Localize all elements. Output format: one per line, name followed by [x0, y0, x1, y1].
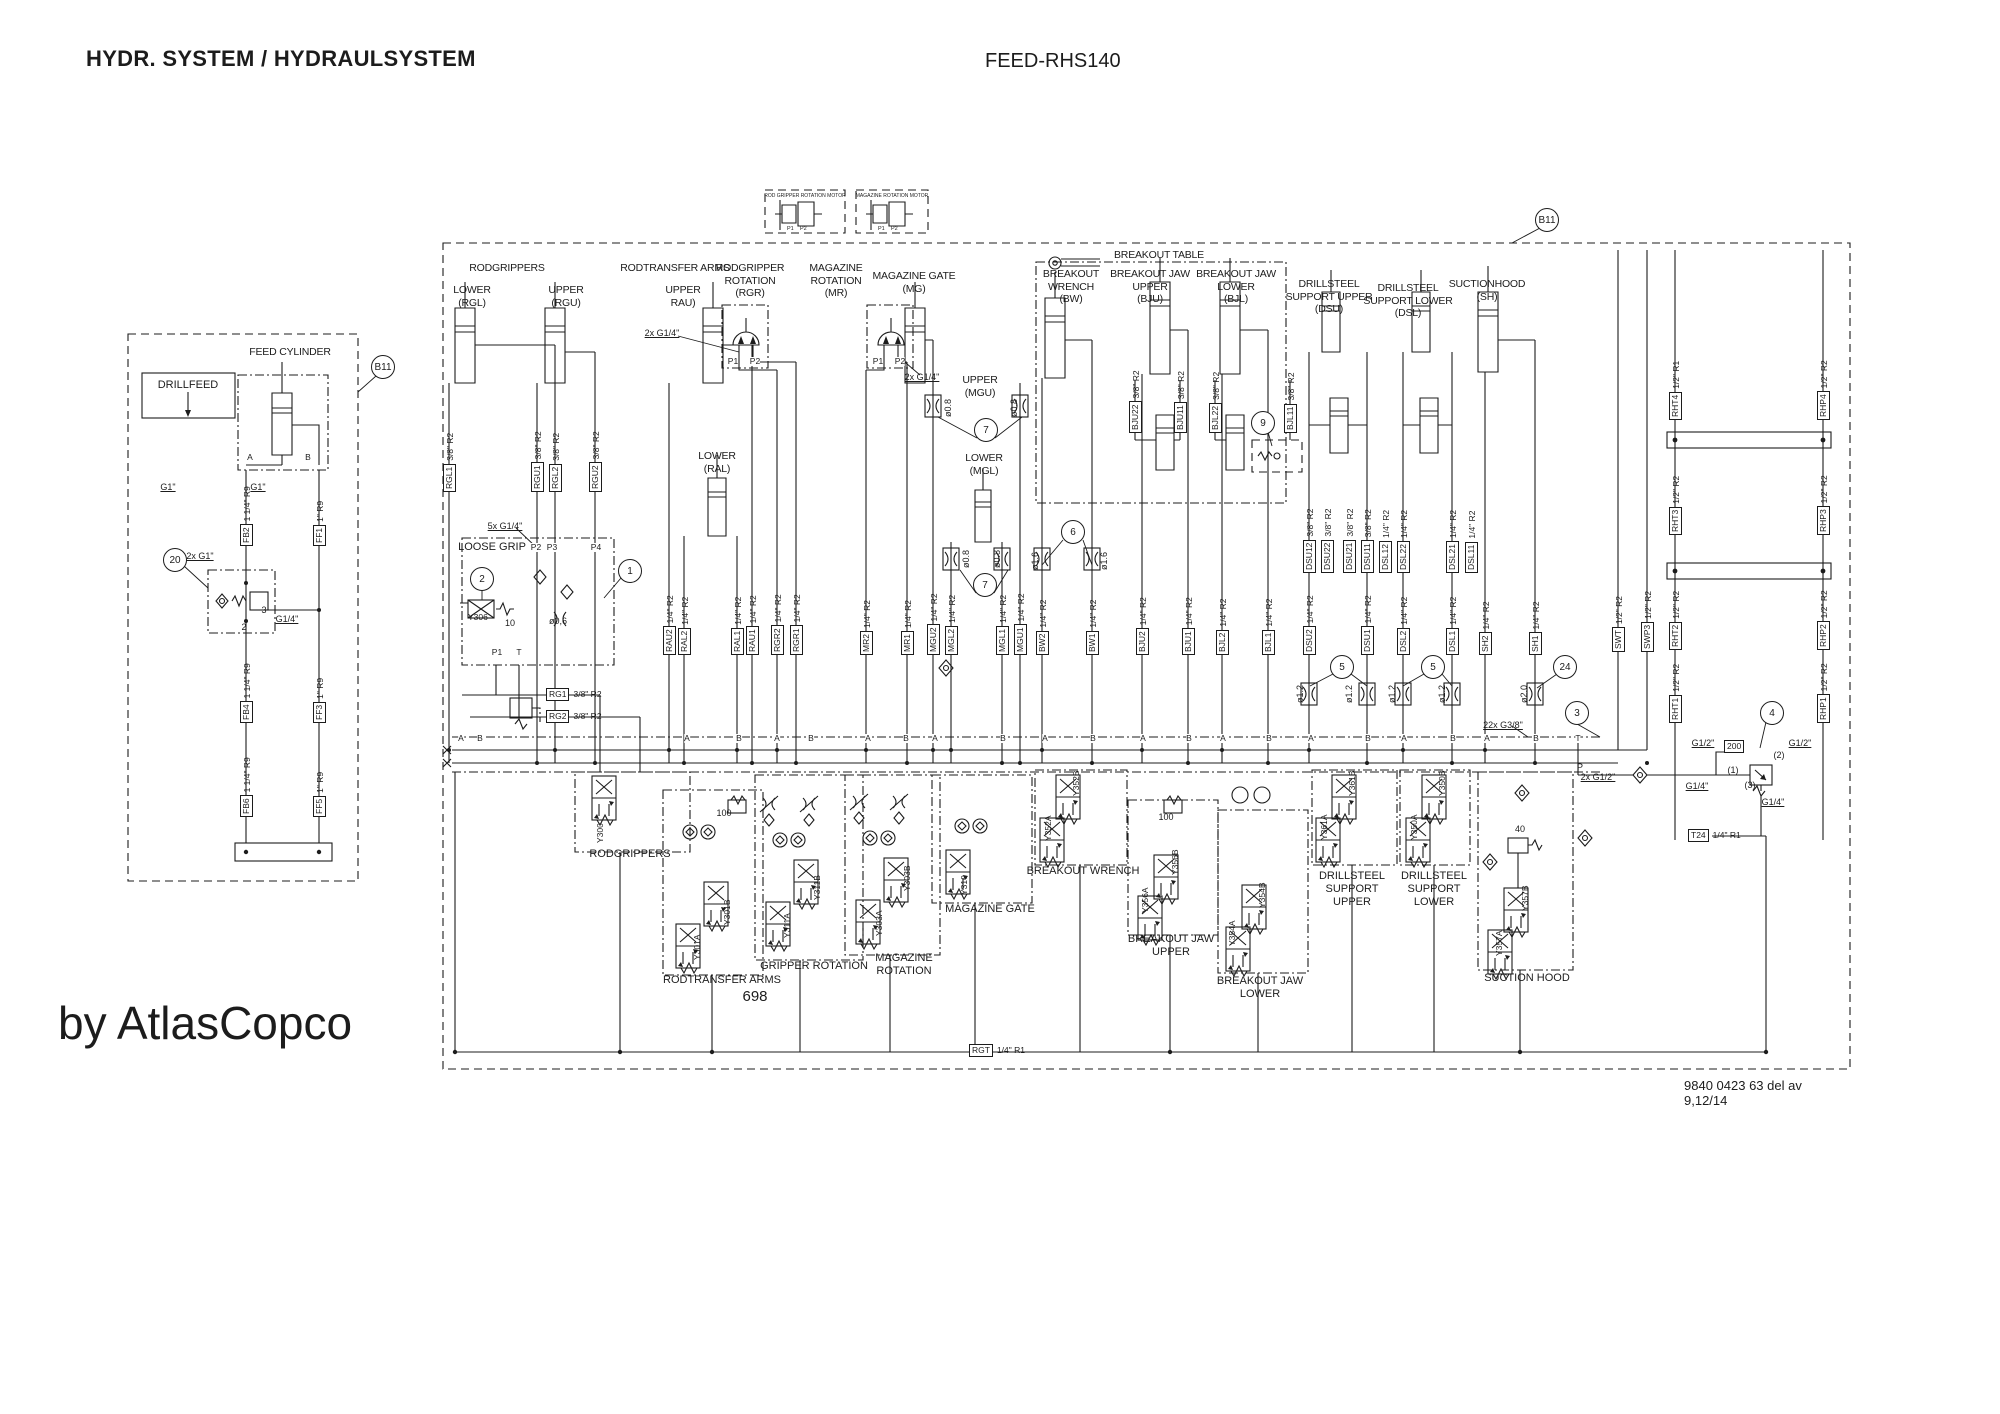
pipe-tag-id: DSL2 [1397, 628, 1410, 655]
section-label: MAGAZINE GATE [945, 903, 1035, 916]
pipe-tag-horizontal: T24 1/4" R1 [1688, 829, 1741, 842]
pipe-tag-id: DSL12 [1379, 541, 1392, 573]
pipe-tag: DSL21 1/4" R2 [1446, 510, 1459, 573]
pipe-tag-id: DSL22 [1397, 541, 1410, 573]
pipe-tag-size: 1/4" R2 [1184, 597, 1194, 625]
pipe-tag-id: BJU22 [1129, 401, 1142, 433]
pipe-tag: DSL2 1/4" R2 [1397, 597, 1410, 655]
pipe-tag: BJU2 1/4" R2 [1136, 597, 1149, 655]
annotation: ø0.8 [992, 550, 1002, 568]
pipe-tag-id: FB2 [240, 524, 253, 546]
pipe-tag-size: 1/4" R2 [1038, 600, 1048, 628]
pipe-tag: MGU1 1/4" R2 [1014, 593, 1027, 655]
pipe-tag-id: RGR2 [771, 625, 784, 655]
pipe-tag: BJU11 3/8" R2 [1174, 371, 1187, 433]
component-title: LOWER (RAL) [698, 450, 736, 475]
annotation: (2) [1774, 750, 1785, 760]
section-label: DRILLFEED [158, 379, 219, 392]
pipe-tag-size: 3/8" R2 [1176, 371, 1186, 399]
pipe-tag-size: 1/2" R2 [1819, 475, 1829, 503]
port-letter: A [1308, 734, 1314, 743]
pipe-tag-size: 3/8" R2 [1286, 372, 1296, 400]
annotation: ø0.8 [961, 550, 971, 568]
section-label: RODTRANSFER ARMS [663, 974, 781, 987]
pipe-tag-id: FF1 [313, 525, 326, 546]
port-letter: B [477, 734, 483, 743]
section-labels: RODGRIPPERSRODTRANSFER ARMSGRIPPER ROTAT… [0, 0, 2000, 1414]
pipe-tag-size: 1/4" R2 [862, 600, 872, 628]
component-title: SUCTIONHOOD (SH) [1449, 278, 1526, 303]
pipe-tag-size: 1/4" R2 [903, 600, 913, 628]
pipe-tag: RAL1 1/4" R2 [731, 597, 744, 655]
pipe-tag-size: 1/4" R2 [1448, 597, 1458, 625]
pipe-tag-id: RGT [969, 1044, 993, 1057]
section-label: BREAKOUT JAW LOWER [1217, 975, 1303, 1001]
pipe-tag-id: MGL2 [945, 626, 958, 655]
annotation: 2x G1/4" [645, 328, 680, 338]
pipe-tag-id: DSU21 [1343, 540, 1356, 573]
schematic-page: HYDR. SYSTEM / HYDRAULSYSTEM FEED-RHS140… [0, 0, 2000, 1414]
pipe-tag: MR1 1/4" R2 [901, 600, 914, 655]
port-letter: B [1533, 734, 1539, 743]
annotation: 100 [1158, 812, 1173, 822]
port-letter: A [247, 453, 253, 462]
annotation: ø0.8 [943, 399, 953, 417]
port-letter: A [1401, 734, 1407, 743]
valve-id: Y361A [1319, 814, 1329, 840]
annotation: (1) [1728, 765, 1739, 775]
section-label: DRILLSTEEL SUPPORT LOWER [1401, 870, 1467, 909]
annotation: ø1.6 [1030, 552, 1040, 570]
pipe-tag-id: RAU2 [663, 626, 676, 655]
callout-circle: 20 [163, 548, 187, 572]
pipe-tag-id: 200 [1724, 740, 1744, 753]
component-title: BREAKOUT TABLE [1114, 249, 1204, 262]
annotation: P [1577, 762, 1583, 772]
pipe-tag-id: SWP3 [1641, 622, 1654, 652]
valve-id: Y301B [722, 899, 732, 925]
pipe-tag-size: 1/4" R1 [997, 1045, 1025, 1055]
port-letter: A [865, 734, 871, 743]
pipe-tag: BJL1 1/4" R2 [1262, 599, 1275, 655]
component-title: BREAKOUT JAW LOWER (BJL) [1196, 268, 1276, 306]
pipe-tag-id: MGL1 [996, 626, 1009, 655]
component-title: UPPER (MGU) [962, 374, 997, 399]
valve-id: Y356B [1170, 849, 1180, 875]
pipe-tag-id: BJU1 [1182, 628, 1195, 655]
component-title: BREAKOUT WRENCH (BW) [1043, 268, 1099, 306]
annotation: G1/4" [1762, 797, 1785, 807]
callout-circle: 2 [470, 567, 494, 591]
component-title: MAGAZINE ROTATION MOTOR [856, 193, 929, 199]
pipe-tag: RHP1 1/2" R2 [1817, 663, 1830, 723]
port-letter: B [808, 734, 814, 743]
pipe-tag: MGU2 1/4" R2 [927, 593, 940, 655]
pipe-tag-size: 1/4" R2 [680, 597, 690, 625]
component-title: FEED CYLINDER [249, 346, 330, 359]
section-label: BREAKOUT WRENCH [1027, 865, 1140, 878]
pipe-tag: RHP4 1/2" R2 [1817, 360, 1830, 420]
schematic-linework [0, 0, 2000, 1414]
pipe-tag-id: BJU2 [1136, 628, 1149, 655]
section-label: LOOSE GRIP [458, 541, 526, 554]
annotation: 2x G1/2" [1581, 772, 1616, 782]
pipe-tag-id: RAL1 [731, 628, 744, 655]
pipe-tag: RAL2 1/4" R2 [678, 597, 691, 655]
valve-id: Y306 [468, 612, 488, 622]
annotation: 22x G3/8" [1483, 720, 1523, 730]
pipe-tag-size: 1/2" R2 [1671, 476, 1681, 504]
port-letter: P3 [547, 543, 557, 552]
port-letter: A [1140, 734, 1146, 743]
pipe-tag: RHT3 1/2" R2 [1669, 476, 1682, 535]
component-title: RODGRIPPER ROTATION (RGR) [716, 262, 785, 300]
pipe-tag-size: 1/4" R2 [1467, 511, 1477, 539]
pipe-tag: DSL22 1/4" R2 [1397, 510, 1410, 573]
pipe-tag-id: SH1 [1529, 632, 1542, 655]
annotation: ø0,6 [549, 616, 567, 626]
pipe-tag-id: BW2 [1036, 631, 1049, 655]
pipe-tag: DSL1 1/4" R2 [1446, 597, 1459, 655]
port-letter: A [1484, 734, 1490, 743]
component-title: UPPER (RGU) [548, 284, 583, 309]
valve-id: Y303A [874, 910, 884, 936]
port-letter: B [1450, 734, 1456, 743]
pipe-tag: SWP3 1/2" R2 [1641, 591, 1654, 652]
pipe-tag-id: BJL2 [1216, 630, 1229, 655]
pipe-tag-size: 1/4" R2 [1381, 510, 1391, 538]
pipe-tag: RAU2 1/4" R2 [663, 595, 676, 655]
pipe-tag-id: FF3 [313, 702, 326, 723]
port-letter: B [1365, 734, 1371, 743]
valve-id: Y357A [1494, 930, 1504, 956]
pipe-tag-id: DSU12 [1303, 540, 1316, 573]
port-letter: P2 [895, 357, 905, 366]
callout-circle: 9 [1251, 411, 1275, 435]
callout-circle: 5 [1421, 655, 1445, 679]
component-title: BREAKOUT JAW UPPER (BJU) [1110, 268, 1190, 306]
pipe-tag-size: 1/4" R2 [1088, 600, 1098, 628]
pipe-tag-id: BJL22 [1209, 403, 1222, 433]
page-title: HYDR. SYSTEM / HYDRAULSYSTEM [86, 46, 476, 72]
annotation: G1/2" [1692, 738, 1715, 748]
port-letter: A [932, 734, 938, 743]
section-label: DRILLSTEEL SUPPORT UPPER [1319, 870, 1385, 909]
port-letter: A [1220, 734, 1226, 743]
pipe-tag-size: 3/8" R2 [533, 431, 543, 459]
horizontal-tags: RG1 3/8" R2 RG2 3/8" R2 RGT 1/4" R1 T24 … [0, 0, 2000, 1414]
port-letter: A [458, 734, 464, 743]
pipe-tag-size: 1 1/4" R9 [242, 757, 252, 792]
pipe-tag-size: 1/4" R2 [1264, 599, 1274, 627]
annotation: 5x G1/4" [488, 521, 523, 531]
page-number: 698 [742, 988, 767, 1005]
component-titles: RODGRIPPERSLOWER (RGL)UPPER (RGU)RODTRAN… [0, 0, 2000, 1414]
pipe-tag: RHT2 1/2" R2 [1669, 591, 1682, 650]
annotations: 5x G1/4"2x G1/4"2x G1/4"2x G1"G1"G1"G1/4… [0, 0, 2000, 1414]
pipe-tag: BJL2 1/4" R2 [1216, 599, 1229, 655]
pipe-tag: DSU1 1/4" R2 [1361, 595, 1374, 655]
pipe-tag-id: BJL1 [1262, 630, 1275, 655]
pipe-tag: RGU2 3/8" R2 [589, 431, 602, 492]
component-title: RODGRIPPERS [469, 262, 544, 275]
pipe-tag-size: 1/4" R2 [1218, 599, 1228, 627]
valve-id: Y311B [812, 875, 822, 900]
component-title: ROD GRIPPER ROTATION MOTOR [764, 193, 845, 199]
port-letter: A [1042, 734, 1048, 743]
pipe-tag: BJL11 3/8" R2 [1284, 372, 1297, 433]
component-title: LOWER (RGL) [453, 284, 491, 309]
pipe-tag-id: FF5 [313, 796, 326, 817]
pipe-tag-id: RAL2 [678, 628, 691, 655]
callout-circle: 24 [1553, 655, 1577, 679]
pipe-tag-size: 1/4" R2 [733, 597, 743, 625]
pipe-tag: DSU12 3/8" R2 [1303, 509, 1316, 573]
pipe-tag: FB6 1 1/4" R9 [240, 757, 253, 817]
pipe-tag: DSU11 3/8" R2 [1361, 509, 1374, 573]
pipe-tag: FB2 1 1/4" R9 [240, 486, 253, 546]
pipe-tag-size: 1" R9 [315, 678, 325, 699]
pipe-tag-size: 3/8" R2 [1323, 509, 1333, 537]
pipe-tag-id: MR2 [860, 631, 873, 655]
brand-text: by AtlasCopco [58, 996, 352, 1050]
valve-id: Y354B [1257, 882, 1267, 908]
pipe-tag: SWT 1/2" R2 [1612, 596, 1625, 652]
port-letter: B [1000, 734, 1006, 743]
pipe-tag-id: SWT [1612, 627, 1625, 652]
valve-id: Y301A [692, 934, 702, 960]
callout-circle: 3 [1565, 701, 1589, 725]
pipe-tag: RGR2 1/4" R2 [771, 594, 784, 655]
pipe-tag-id: DSU1 [1361, 626, 1374, 655]
pipe-tag-size: 1/2" R2 [1671, 664, 1681, 692]
section-label: BREAKOUT JAW UPPER [1128, 933, 1214, 959]
annotation: (3) [1745, 780, 1756, 790]
port-letter: T [1575, 734, 1580, 743]
pipe-tag: RHT1 1/2" R2 [1669, 664, 1682, 723]
pipe-tag: FF1 1" R9 [313, 501, 326, 546]
section-label: SUCTION HOOD [1484, 972, 1570, 985]
callout-circle: B11 [1535, 208, 1559, 232]
port-letter: P2 [750, 357, 760, 366]
pipe-tags: FB2 1 1/4" R9 FF1 1" R9 FB4 1 1/4" R9 FF… [0, 0, 2000, 1414]
component-title: MAGAZINE ROTATION (MR) [809, 262, 862, 300]
pipe-tag: RGL2 3/8" R2 [549, 433, 562, 492]
annotation: 2x G1/4" [905, 372, 940, 382]
pipe-tag-size: 1/2" R2 [1819, 360, 1829, 388]
valve-id: Y350A [1409, 814, 1419, 840]
pipe-tag-id: DSL21 [1446, 541, 1459, 573]
pipe-tag-size: 1/4" R2 [1481, 601, 1491, 629]
pipe-tag: FB4 1 1/4" R9 [240, 663, 253, 723]
pipe-tag: FF5 1" R9 [313, 772, 326, 817]
component-title: DRILLSTEEL SUPPORT LOWER (DSL) [1363, 282, 1452, 320]
pipe-tag-id: T24 [1688, 829, 1709, 842]
pipe-tag-size: 1/4" R2 [1448, 510, 1458, 538]
pipe-tag-id: RHT1 [1669, 695, 1682, 723]
pipe-tag-id: FB4 [240, 701, 253, 723]
pipe-tag-size: 1/4" R2 [947, 595, 957, 623]
component-title: MAGAZINE GATE (MG) [873, 270, 956, 295]
pipe-tag-id: DSU2 [1303, 626, 1316, 655]
valve-id: Y357B [1520, 885, 1530, 911]
pipe-tag-id: RHT2 [1669, 622, 1682, 650]
callout-circle: 1 [618, 559, 642, 583]
pipe-tag-size: 3/8" R2 [573, 711, 601, 721]
valve-id: Y352B [1071, 770, 1081, 796]
pipe-tag-id: MR1 [901, 631, 914, 655]
pipe-tag-size: 1 1/4" R9 [242, 486, 252, 521]
callout-circle: 6 [1061, 520, 1085, 544]
pipe-tag-size: 1/2" R2 [1671, 591, 1681, 619]
pipe-tag: RAU1 1/4" R2 [746, 595, 759, 655]
callout-circle: 5 [1330, 655, 1354, 679]
pipe-tag-size: 1/2" R2 [1819, 663, 1829, 691]
port-letter: P4 [591, 543, 601, 552]
annotation: G1" [250, 482, 265, 492]
annotation: 3 [261, 605, 266, 615]
annotation: ø1.6 [1099, 552, 1109, 570]
annotation: ø0.8 [1009, 399, 1019, 417]
port-letter: A [684, 734, 690, 743]
pipe-tag-id: DSL1 [1446, 628, 1459, 655]
pipe-tag-id: DSL11 [1465, 542, 1478, 573]
port-letter: B [736, 734, 742, 743]
pipe-tag-size: 1/4" R2 [1531, 601, 1541, 629]
pipe-tag-id: BW1 [1086, 631, 1099, 655]
pipe-tag-size: 1/2" R2 [1643, 591, 1653, 619]
pipe-tag-id: RHP3 [1817, 506, 1830, 535]
annotation: ø2.0 [1519, 685, 1529, 703]
pipe-tag-size: 3/8" R2 [591, 431, 601, 459]
pipe-tag-id: RGL1 [443, 464, 456, 492]
pipe-tag: SH1 1/4" R2 [1529, 601, 1542, 655]
annotation: P1 [878, 226, 885, 232]
pipe-tag-horizontal: RG2 3/8" R2 [546, 710, 602, 723]
port-letter: B [1186, 734, 1192, 743]
pipe-tag-size: 1/4" R2 [665, 595, 675, 623]
pipe-tag: MR2 1/4" R2 [860, 600, 873, 655]
annotation: P1 [787, 226, 794, 232]
pipe-tag: BW1 1/4" R2 [1086, 600, 1099, 655]
annotation: 100 [716, 808, 731, 818]
callout-circle: 7 [973, 573, 997, 597]
valve-id: Y356A [1140, 887, 1150, 913]
pipe-tag-size: 3/8" R2 [1345, 509, 1355, 537]
callout-circle: 7 [974, 418, 998, 442]
valve-id: Y352A [1043, 815, 1053, 841]
port-letter: P2 [531, 543, 541, 552]
pipe-tag: RHP2 1/2" R2 [1817, 590, 1830, 650]
pipe-tag-size: 1/2" R1 [1671, 361, 1681, 389]
document-number: 9840 0423 63 del av 9,12/14 [1684, 1078, 1842, 1108]
port-letter: P1 [728, 357, 738, 366]
callout-circle: 4 [1760, 701, 1784, 725]
port-letter: B [305, 453, 311, 462]
pipe-tag-id: RHT3 [1669, 507, 1682, 535]
pipe-tag: FF3 1" R9 [313, 678, 326, 723]
annotation: ø1.2 [1437, 685, 1447, 703]
pipe-tag: RHT4 1/2" R1 [1669, 361, 1682, 420]
valve-id: Y303B [902, 865, 912, 891]
pipe-tag: DSU21 3/8" R2 [1343, 509, 1356, 573]
valve-id: Y361B [1347, 770, 1357, 796]
pipe-tag-id: RG1 [546, 688, 569, 701]
pipe-tag-size: 1/4" R2 [748, 595, 758, 623]
annotation: G1" [160, 482, 175, 492]
pipe-tag-id: FB6 [240, 795, 253, 817]
pipe-tag-id: RHP4 [1817, 391, 1830, 420]
callout-circles: 20217769552434B11B11 [0, 0, 2000, 1414]
valve-id: Y300 [595, 823, 605, 843]
pipe-tag-id: RAU1 [746, 626, 759, 655]
pipe-tag-size: 1/4" R2 [998, 595, 1008, 623]
pipe-tag-id: BJL11 [1284, 404, 1297, 433]
annotation: P2 [891, 226, 898, 232]
pipe-tag-id: RG2 [546, 710, 569, 723]
port-letter: B [1266, 734, 1272, 743]
annotation: ø1.2 [1295, 685, 1305, 703]
pipe-tag-size: 1/2" R2 [1614, 596, 1624, 624]
pipe-tag-horizontal: 200 [1724, 740, 1748, 753]
pipe-tag: DSU2 1/4" R2 [1303, 595, 1316, 655]
component-title: LOWER (MGL) [965, 452, 1003, 477]
valve-id: Y311A [782, 913, 792, 938]
pipe-tag: RGU1 3/8" R2 [531, 431, 544, 492]
pipe-tag-size: 1/4" R2 [1138, 597, 1148, 625]
port-letter: T [516, 648, 521, 657]
pipe-tag-id: RGL2 [549, 464, 562, 492]
pipe-tag-size: 1/4" R2 [1016, 593, 1026, 621]
pipe-tag-size: 3/8" R2 [445, 433, 455, 461]
pipe-tag: BJL22 3/8" R2 [1209, 372, 1222, 433]
valve-id: Y350B [1437, 770, 1447, 796]
pipe-tag-id: MGU1 [1014, 624, 1027, 655]
pipe-tag-size: 3/8" R2 [551, 433, 561, 461]
port-letter: B [1090, 734, 1096, 743]
component-title: UPPER RAU) [665, 284, 700, 309]
pipe-tag-id: RHP2 [1817, 621, 1830, 650]
annotation: 40 [1515, 824, 1525, 834]
pipe-tag: MGL2 1/4" R2 [945, 595, 958, 655]
valve-ids: Y306Y300Y301BY301AY311BY311AY303BY303AY3… [0, 0, 2000, 1414]
pipe-tag-id: RHP1 [1817, 694, 1830, 723]
pipe-tag-id: RHT4 [1669, 392, 1682, 420]
pipe-tag: BJU1 1/4" R2 [1182, 597, 1195, 655]
section-label: RODGRIPPERS [589, 848, 670, 861]
annotation: G1/4" [276, 614, 299, 624]
annotation: 2x G1" [186, 551, 213, 561]
port-letter: B [903, 734, 909, 743]
pipe-tag-size: 1/4" R2 [1399, 510, 1409, 538]
pipe-tag-size: 1/4" R1 [1713, 830, 1741, 840]
pipe-tag-id: DSU22 [1321, 540, 1334, 573]
annotation: G1/2" [1789, 738, 1812, 748]
callout-circle: B11 [371, 355, 395, 379]
pipe-tag-size: 1" R9 [315, 501, 325, 522]
pipe-tag-size: 3/8" R2 [1131, 370, 1141, 398]
pipe-tag: DSU22 3/8" R2 [1321, 509, 1334, 573]
annotation: 2 [241, 622, 246, 632]
pipe-tag: RGR1 1/4" R2 [790, 594, 803, 655]
pipe-tag: MGL1 1/4" R2 [996, 595, 1009, 655]
component-title: DRILLSTEEL SUPPORT UPPER (DSU) [1286, 278, 1373, 316]
port-letter: P1 [873, 357, 883, 366]
pipe-tag-size: 1" R9 [315, 772, 325, 793]
pipe-tag-id: DSU11 [1361, 540, 1374, 573]
pipe-tag-size: 1/2" R2 [1819, 590, 1829, 618]
pipe-tag-id: RGU1 [531, 462, 544, 492]
